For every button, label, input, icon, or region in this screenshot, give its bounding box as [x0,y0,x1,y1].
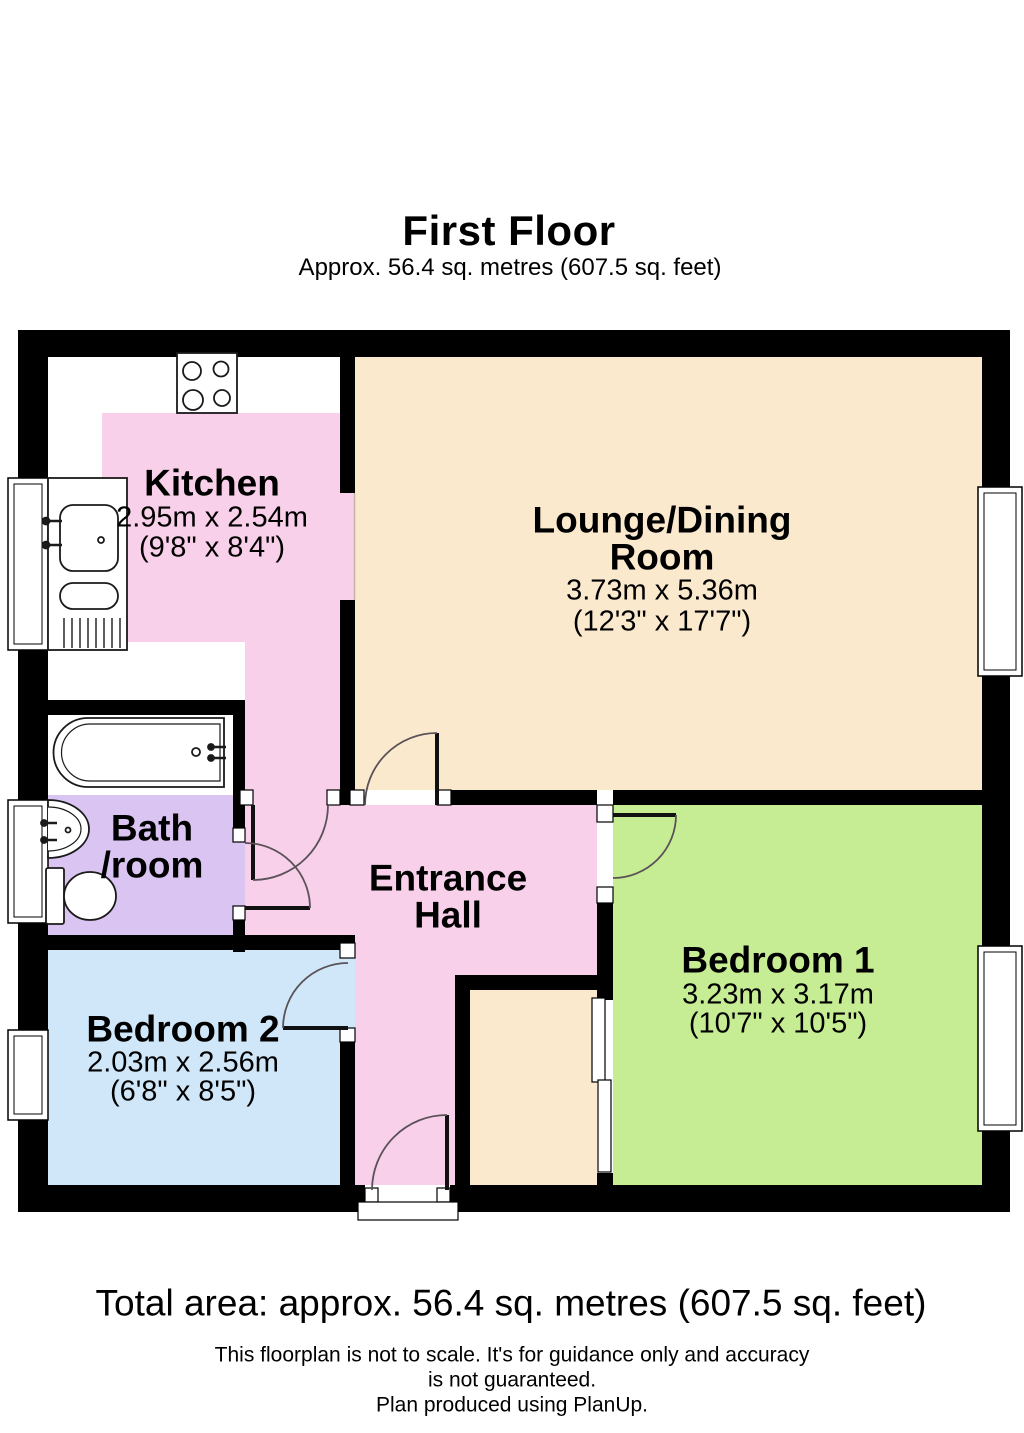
floorplan-page: First Floor Approx. 56.4 sq. metres (607… [0,0,1024,1433]
wall [18,330,1010,357]
hob-icon [177,353,237,413]
bathroom-door-opening [233,842,245,906]
bedroom1-dim-metric: 3.23m x 3.17m [682,981,874,1010]
hall-name-line2: Hall [414,897,482,934]
bathroom-name-line1: Bath [111,810,193,847]
door-jamb [340,943,355,958]
door-jamb [365,1188,378,1202]
disclaimer-line3: Plan produced using PlanUp. [376,1395,648,1416]
wall [48,700,245,715]
door-jamb [233,828,245,842]
lounge-dim-metric: 3.73m x 5.36m [566,577,758,606]
wall [613,790,982,805]
disclaimer-line1: This floorplan is not to scale. It's for… [215,1345,810,1366]
kitchen-sink-icon [43,478,128,650]
bedroom2-dim-imperial: (6'8" x 8'5") [110,1078,256,1107]
wall [340,600,355,792]
bedroom2-name: Bedroom 2 [86,1011,279,1048]
total-area-text: Total area: approx. 56.4 sq. metres (607… [96,1285,927,1322]
wall [455,975,470,1185]
lounge-window [978,487,1022,676]
bathroom-name-line2: /room [101,847,204,884]
kitchen-name: Kitchen [144,465,280,502]
page-subtitle: Approx. 56.4 sq. metres (607.5 sq. feet) [299,256,722,280]
door-jamb [340,1028,355,1042]
bathtub-icon [54,718,227,787]
door-jamb [240,790,253,805]
front-door-threshold [358,1202,458,1220]
bedroom2-door-opening [340,958,355,1028]
lounge-name-line1: Lounge/Dining [533,502,792,539]
door-jamb [233,906,245,920]
bedroom1-name: Bedroom 1 [681,942,874,979]
door-jamb [597,805,613,822]
lounge-dim-imperial: (12'3" x 17'7") [573,608,751,637]
bedroom2-dim-metric: 2.03m x 2.56m [87,1049,279,1078]
hall-name-line1: Entrance [369,860,527,897]
kitchen-lounge-archway [340,493,355,600]
wall [18,1185,1010,1212]
kitchen-window [8,478,48,650]
sliding-door-panel [598,1080,611,1172]
page-title: First Floor [402,210,615,252]
wall [340,357,355,493]
kitchen-dim-metric: 2.95m x 2.54m [116,504,308,533]
door-jamb [437,790,451,805]
disclaimer-line2: is not guaranteed. [428,1370,596,1391]
wall [455,975,613,990]
bathroom-window [8,800,48,923]
wall [48,935,355,950]
bedroom1-dim-imperial: (10'7" x 10'5") [689,1010,867,1039]
bedroom1-door-opening [597,822,613,887]
sliding-door-panel [592,998,605,1082]
door-jamb [437,1188,450,1202]
wall [597,1173,613,1185]
bedroom2-window [8,1030,48,1120]
door-jamb [327,790,340,805]
bedroom1-window [978,946,1022,1131]
wall [233,700,245,830]
lounge-name-line2: Room [610,539,715,576]
door-jamb [350,790,364,805]
kitchen-dim-imperial: (9'8" x 8'4") [139,534,285,563]
cupboard-floor [470,990,597,1185]
wall [451,790,597,805]
corridor-opening [253,790,327,805]
door-jamb [597,887,613,903]
